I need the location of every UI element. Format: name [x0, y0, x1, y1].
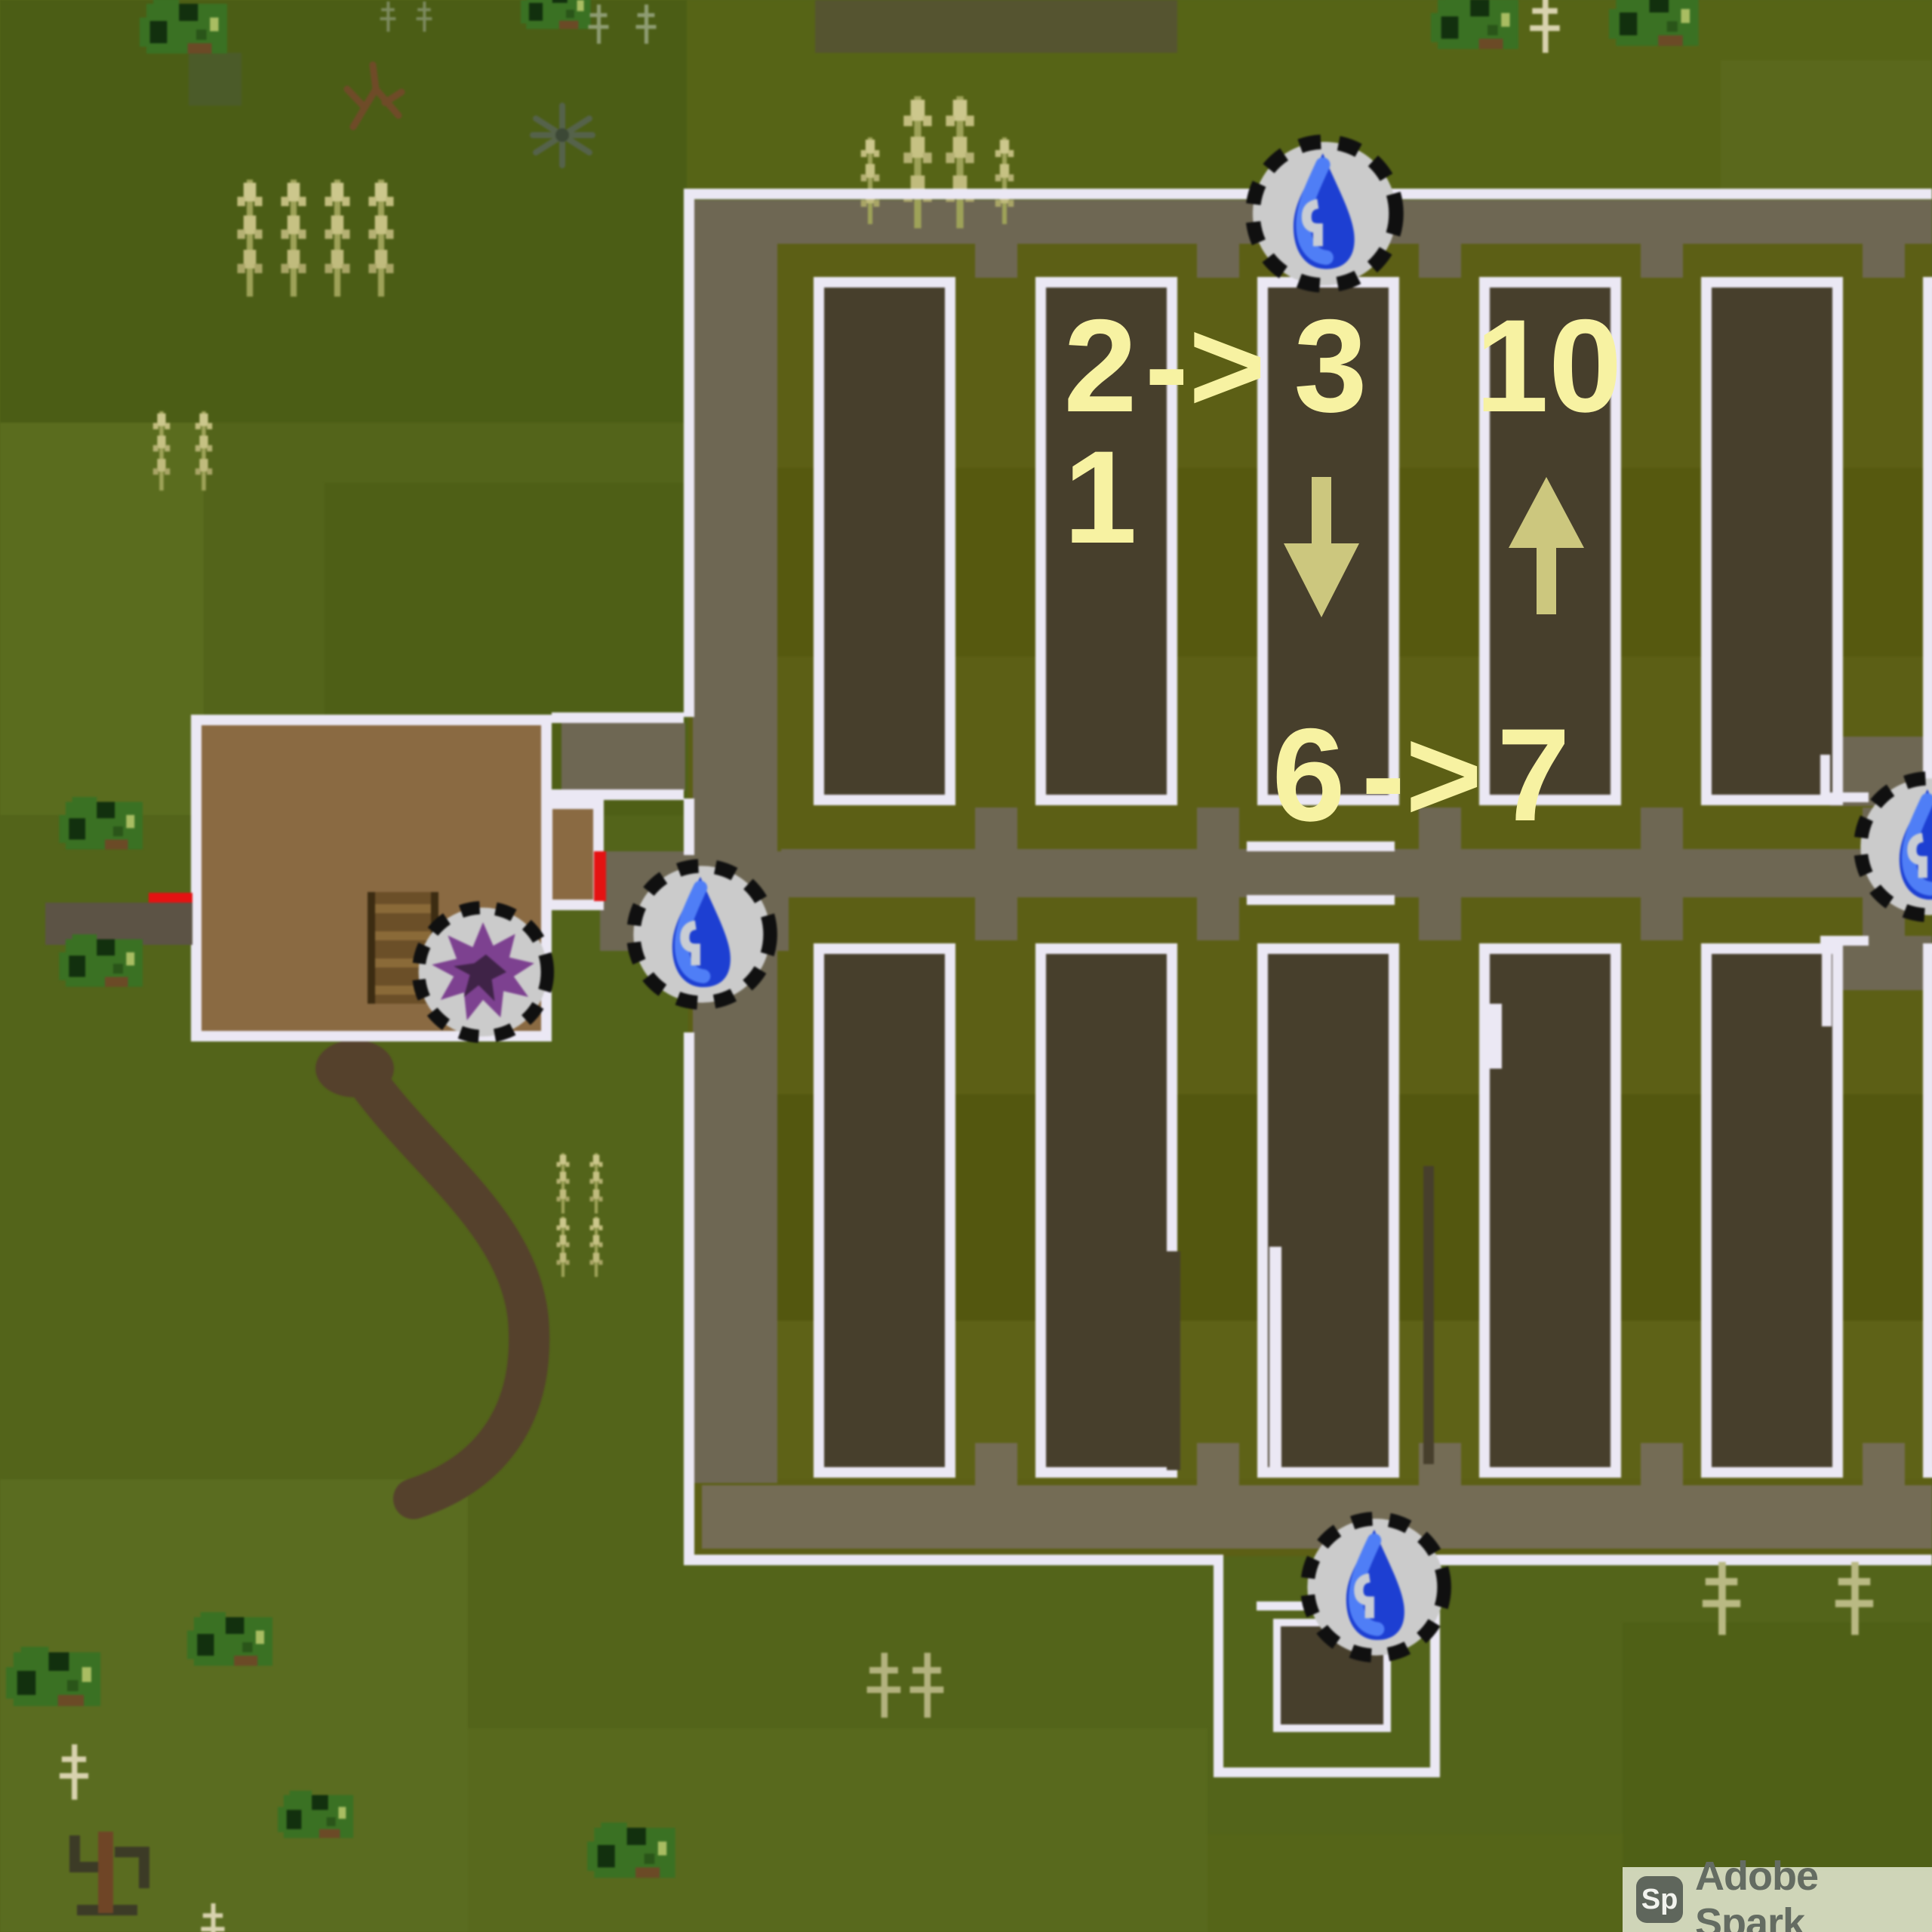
label-plot-2: 2 [1063, 300, 1137, 432]
label-route-2-arrow: -> [1361, 709, 1482, 841]
watermark: Sp Adobe Spark [1623, 1867, 1932, 1932]
adobe-spark-logo-icon: Sp [1636, 1876, 1683, 1923]
annotation-overlay: 2 -> 3 1 10 6 -> 7 Sp Adobe Spark [0, 0, 1932, 1932]
watermark-label: Adobe Spark [1695, 1853, 1932, 1932]
label-plot-3: 3 [1294, 300, 1367, 432]
label-plot-7: 7 [1497, 709, 1570, 841]
game-map-screenshot: 2 -> 3 1 10 6 -> 7 Sp Adobe Spark [0, 0, 1932, 1932]
label-plot-10: 10 [1475, 300, 1623, 432]
route-arrow-up-icon [1508, 477, 1586, 614]
label-plot-6: 6 [1272, 709, 1345, 841]
label-route-1-arrow: -> [1145, 300, 1266, 432]
route-arrow-down-icon [1283, 477, 1361, 617]
label-plot-1: 1 [1063, 432, 1137, 564]
